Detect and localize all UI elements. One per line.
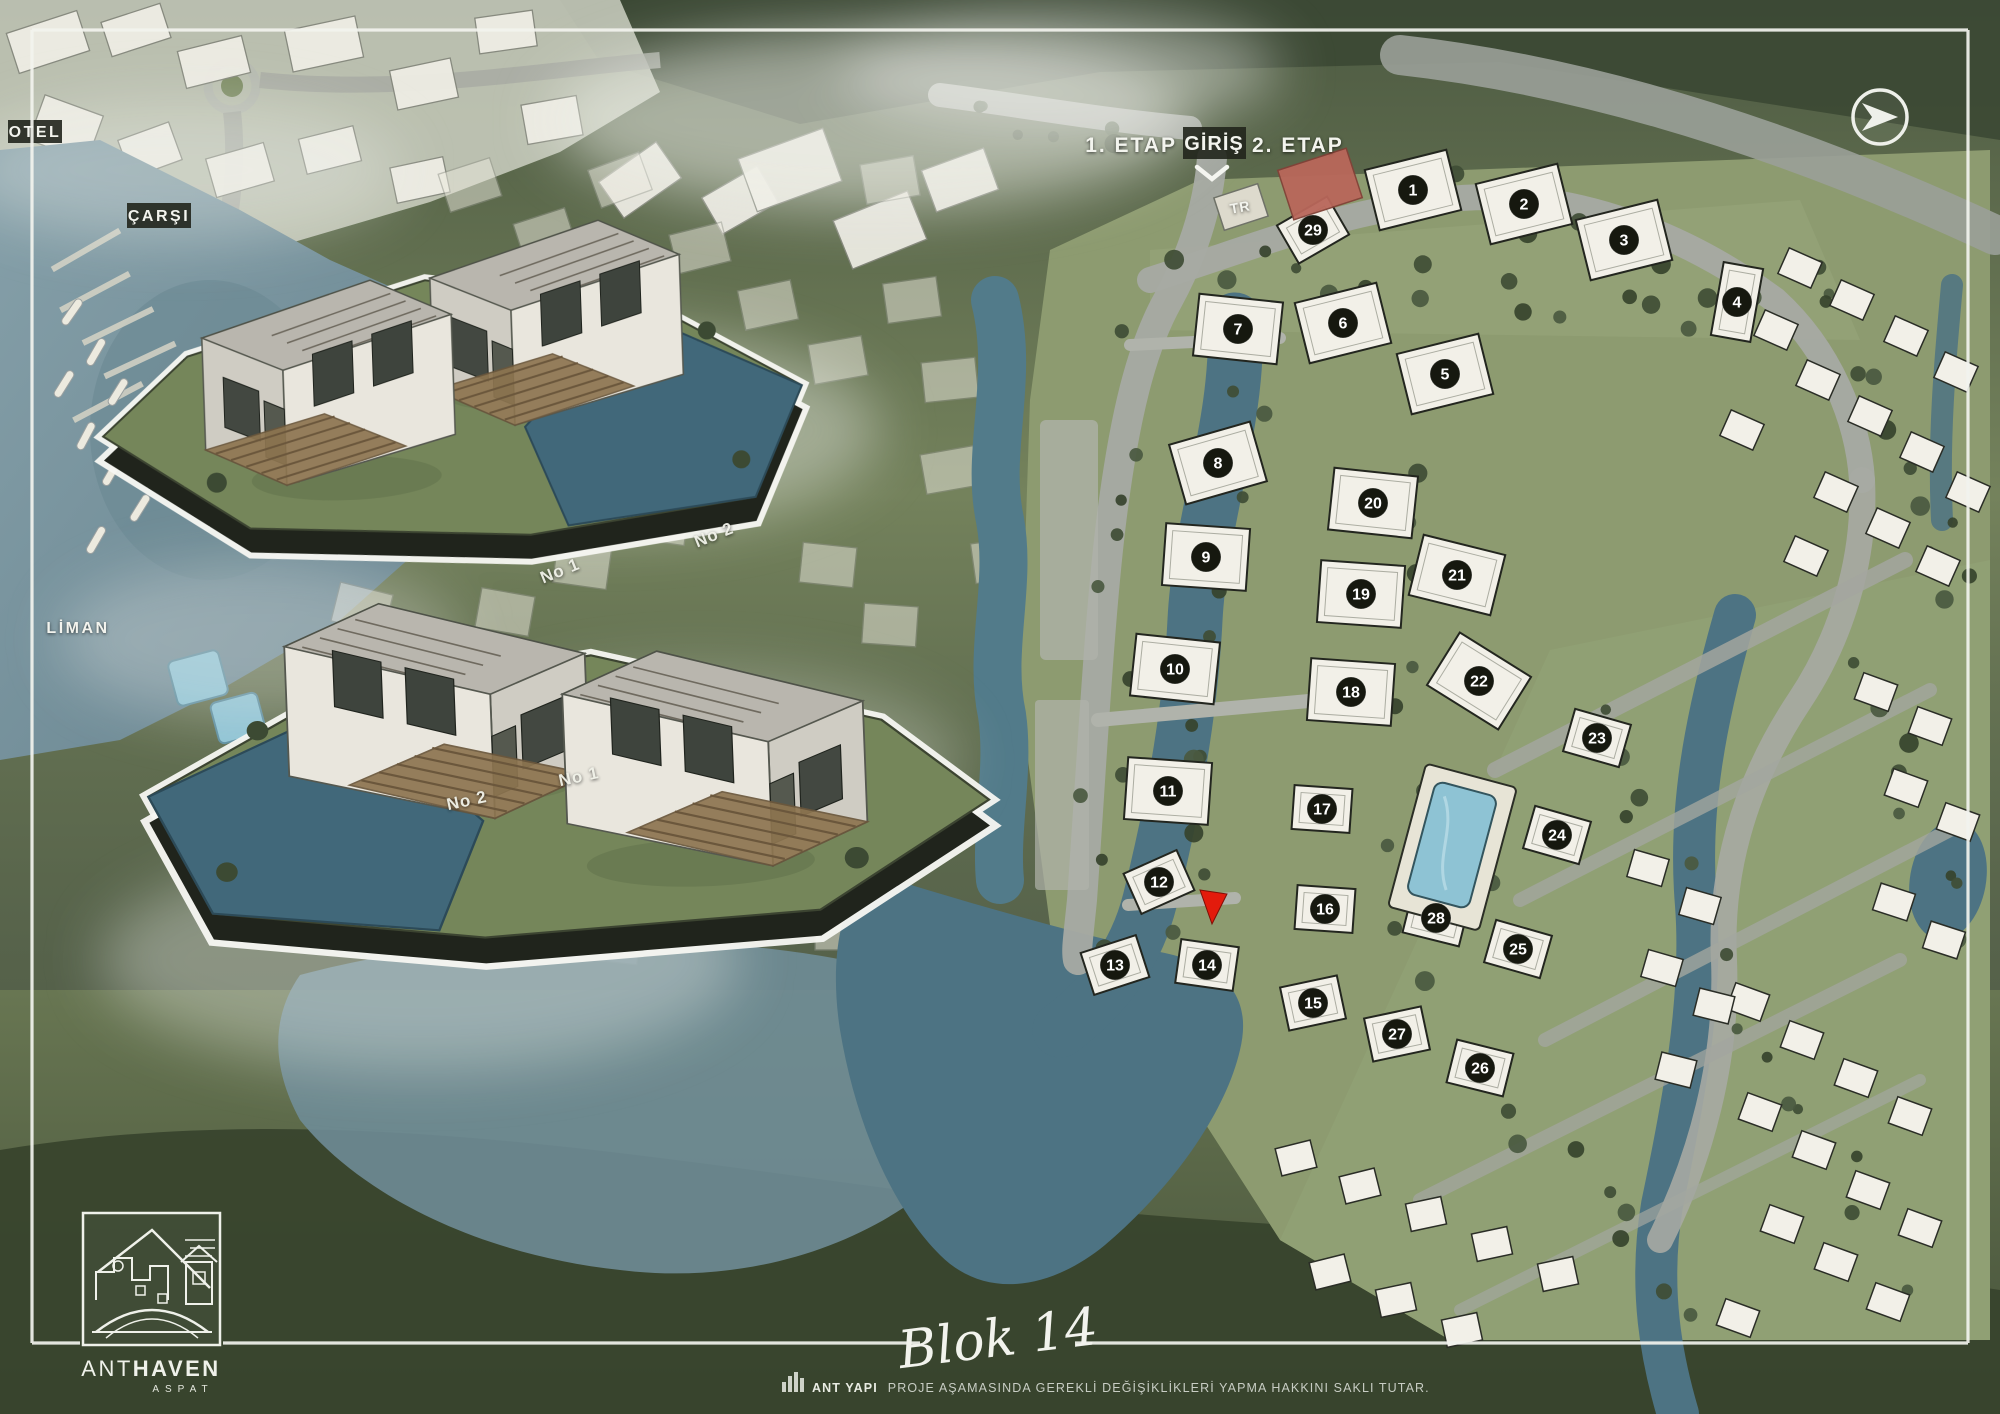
svg-text:23: 23 [1588,731,1606,748]
block-marker-16[interactable]: 16 [1310,894,1340,924]
block-marker-23[interactable]: 23 [1582,723,1612,753]
svg-text:1: 1 [1409,183,1418,200]
svg-text:24: 24 [1548,828,1566,845]
svg-text:26: 26 [1471,1061,1489,1078]
svg-text:18: 18 [1342,685,1360,702]
svg-text:28: 28 [1427,911,1445,928]
svg-text:16: 16 [1316,902,1334,919]
block-marker-10[interactable]: 10 [1160,654,1190,684]
block-marker-21[interactable]: 21 [1442,560,1472,590]
svg-text:11: 11 [1160,784,1177,801]
logo-subtitle: ASPAT [152,1384,213,1395]
block-marker-1[interactable]: 1 [1398,175,1428,205]
svg-text:10: 10 [1166,662,1184,679]
masterplan-canvas: No 1No 2No 2No 1 12345678910111213141516… [0,0,2000,1414]
svg-text:15: 15 [1304,996,1322,1013]
svg-text:17: 17 [1313,802,1331,819]
block-marker-9[interactable]: 9 [1191,542,1221,572]
block-marker-7[interactable]: 7 [1223,314,1253,344]
block-marker-6[interactable]: 6 [1328,308,1358,338]
disclaimer-text: ANT YAPIPROJE AŞAMASINDA GEREKLİ DEĞİŞİK… [812,1380,1430,1395]
north-arrow-icon [1853,90,1907,144]
svg-text:21: 21 [1448,568,1466,585]
phase2-label: 2. ETAP [1252,134,1344,157]
block-marker-14[interactable]: 14 [1192,950,1222,980]
svg-text:4: 4 [1733,295,1742,312]
liman-label: LİMAN [46,619,109,637]
block-marker-4[interactable]: 4 [1722,287,1752,317]
svg-text:14: 14 [1198,958,1216,975]
block-marker-25[interactable]: 25 [1503,934,1533,964]
svg-text:19: 19 [1352,587,1370,604]
block-marker-8[interactable]: 8 [1203,448,1233,478]
svg-text:27: 27 [1388,1027,1406,1044]
svg-text:3: 3 [1620,233,1629,250]
block-marker-3[interactable]: 3 [1609,225,1639,255]
svg-text:9: 9 [1202,550,1211,567]
block-marker-11[interactable]: 11 [1153,776,1183,806]
block-marker-28[interactable]: 28 [1421,903,1451,933]
svg-text:7: 7 [1234,322,1243,339]
block-marker-17[interactable]: 17 [1307,794,1337,824]
svg-text:20: 20 [1364,496,1382,513]
svg-text:6: 6 [1339,316,1348,333]
svg-text:22: 22 [1470,674,1488,691]
block-marker-5[interactable]: 5 [1430,359,1460,389]
svg-text:13: 13 [1106,958,1124,975]
block-marker-20[interactable]: 20 [1358,488,1388,518]
block-marker-2[interactable]: 2 [1509,189,1539,219]
block-marker-12[interactable]: 12 [1144,867,1174,897]
carsi-label: ÇARŞI [128,208,190,225]
svg-text:25: 25 [1509,942,1527,959]
otel-label: OTEL [9,124,62,141]
block-marker-18[interactable]: 18 [1336,677,1366,707]
entrance-label: GİRİŞ [1184,132,1243,155]
block-marker-26[interactable]: 26 [1465,1053,1495,1083]
block-marker-29[interactable]: 29 [1298,215,1328,245]
block-marker-24[interactable]: 24 [1542,820,1572,850]
logo-wordmark: ANTHAVEN [81,1356,220,1381]
svg-text:2: 2 [1520,197,1529,214]
block-marker-22[interactable]: 22 [1464,666,1494,696]
svg-text:12: 12 [1150,875,1168,892]
phase1-label: 1. ETAP [1085,134,1177,157]
block-marker-13[interactable]: 13 [1100,950,1130,980]
block-marker-19[interactable]: 19 [1346,579,1376,609]
svg-text:8: 8 [1214,456,1223,473]
svg-text:5: 5 [1441,367,1450,384]
block-marker-15[interactable]: 15 [1298,988,1328,1018]
block-marker-27[interactable]: 27 [1382,1019,1412,1049]
brand-logo: ANTHAVEN ASPAT [81,1213,220,1395]
svg-text:29: 29 [1304,223,1322,240]
